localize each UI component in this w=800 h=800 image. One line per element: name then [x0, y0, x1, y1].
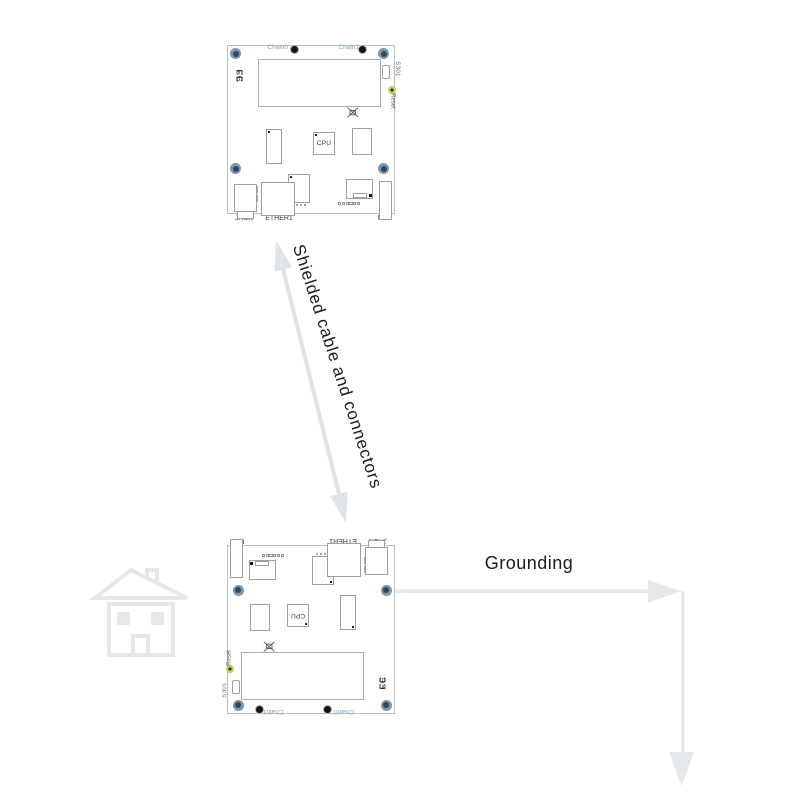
jack-connector [234, 184, 257, 212]
grounding-label: Grounding [459, 553, 599, 574]
ic-chip [352, 128, 372, 155]
chain0-pin-icon [290, 45, 299, 54]
ic-chip [340, 595, 356, 630]
cpu-chip: CPU [313, 132, 335, 155]
speaker-off-icon [347, 107, 359, 118]
screw-icon [381, 585, 392, 596]
cpu-label: CPU [317, 140, 331, 147]
screw-icon [230, 163, 241, 174]
control-board-bottom: Chain0 Chain1 FC CE CPU JACK ETHER1 USB … [227, 545, 395, 714]
ic-chip-inner [255, 561, 269, 566]
speaker-off-icon [263, 641, 275, 652]
screw-icon [378, 163, 389, 174]
pin1-dot [250, 562, 253, 565]
s301-switch-icon [382, 65, 390, 79]
solder-pads [243, 548, 284, 557]
ic-chip [250, 604, 270, 631]
s301-switch-icon [232, 680, 240, 694]
chain1-pin-icon [255, 705, 264, 714]
screw-icon [233, 585, 244, 596]
chain1-pin-icon [358, 45, 367, 54]
chain0-label: Chain0 [334, 707, 378, 715]
solder-pads [338, 202, 379, 211]
usb-connector [230, 539, 243, 578]
fcc-ce-marks: FC CE [233, 50, 246, 90]
pin1-dot [369, 194, 372, 197]
reset-label: Reset [388, 90, 398, 113]
ic-chip-inner [353, 193, 367, 198]
chain1-label: Chain1 [263, 707, 308, 715]
s301-label: S301 [392, 58, 402, 80]
screw-icon [233, 700, 244, 711]
chain1-label: Chain1 [314, 44, 359, 52]
s301-label: S301 [220, 679, 230, 701]
diagram-art [0, 0, 800, 800]
chain0-pin-icon [323, 705, 332, 714]
chain0-label: Chain0 [244, 44, 288, 52]
ethernet-connector [261, 182, 295, 216]
jack-connector-tab [237, 211, 254, 219]
reset-label: Reset [225, 647, 235, 670]
hashboard-connector-area [241, 652, 364, 700]
cpu-label: CPU [291, 612, 305, 619]
screw-icon [378, 48, 389, 59]
ce-mark: CE [233, 70, 246, 83]
house-icon [95, 570, 187, 655]
ce-mark: CE [377, 676, 390, 689]
usb-connector [379, 181, 392, 220]
fcc-ce-marks: FC CE [377, 670, 390, 710]
control-board-top: Chain0 Chain1 FC CE CPU JACK ETHER1 USB … [227, 45, 395, 214]
cpu-chip: CPU [287, 604, 309, 627]
grounding-arrow-icon [394, 580, 694, 786]
ethernet-connector [327, 543, 361, 577]
jack-connector-tab [368, 540, 385, 548]
jack-connector [365, 547, 388, 575]
diagram-canvas: { "diagram": { "shielded_label": "Shield… [0, 0, 800, 800]
ic-chip [266, 129, 282, 164]
hashboard-connector-area [258, 59, 381, 107]
